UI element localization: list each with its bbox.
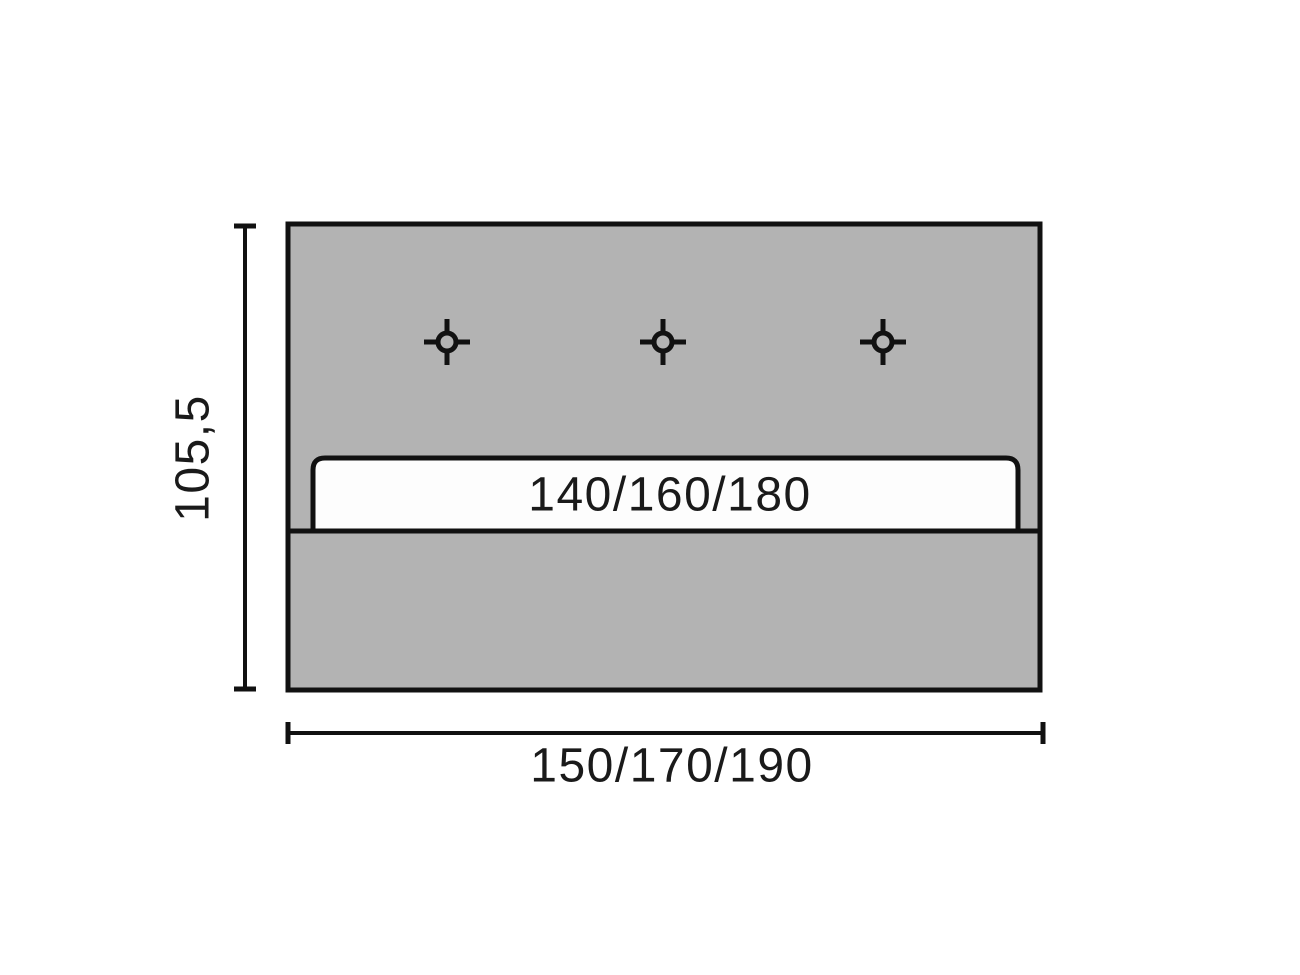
width-dimension-label: 150/170/190 [530, 740, 813, 793]
slot-width-label: 140/160/180 [528, 469, 811, 522]
furniture-dimension-diagram: 140/160/180 105,5 150/170/190 [0, 0, 1300, 975]
diagram-canvas: 140/160/180 105,5 150/170/190 [0, 0, 1300, 975]
height-dimension-line [234, 226, 256, 689]
height-dimension-label: 105,5 [167, 394, 220, 522]
